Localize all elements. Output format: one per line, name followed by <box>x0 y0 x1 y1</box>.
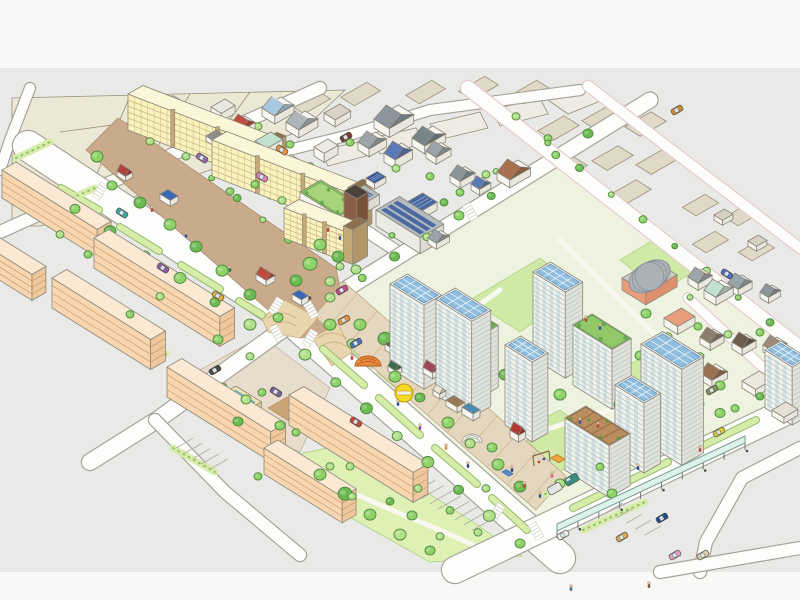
tree <box>756 393 764 400</box>
tree <box>422 457 434 468</box>
tree <box>390 252 400 261</box>
tree <box>545 140 551 146</box>
tree <box>190 241 202 252</box>
tree <box>364 509 376 520</box>
tree <box>233 417 243 426</box>
tree <box>348 493 356 500</box>
tree <box>299 349 311 360</box>
tree <box>446 507 454 514</box>
tree <box>641 309 651 318</box>
tree <box>414 485 422 492</box>
tree <box>91 151 103 162</box>
pedestrian <box>339 234 342 240</box>
tree <box>326 463 334 470</box>
tree <box>354 319 366 330</box>
pedestrian <box>599 324 602 330</box>
pedestrian <box>699 446 702 452</box>
highrise-tower-solar-roof <box>436 288 491 417</box>
pedestrian <box>327 226 330 232</box>
town-illustration-page <box>0 0 800 600</box>
pedestrian <box>597 422 600 428</box>
parked-bicycle <box>746 450 749 453</box>
pedestrian <box>419 424 422 430</box>
tree <box>216 265 228 276</box>
tree <box>407 511 417 520</box>
tree <box>324 319 336 330</box>
tree <box>440 199 448 206</box>
tree <box>386 498 394 505</box>
tree <box>756 329 764 336</box>
pedestrian <box>539 492 542 498</box>
tree <box>552 151 560 158</box>
yellow-sphere-kiosk <box>395 384 413 402</box>
tree <box>389 371 401 382</box>
tree <box>672 243 678 249</box>
tree <box>483 510 495 521</box>
tree <box>56 231 64 238</box>
tree <box>292 429 300 436</box>
tree <box>325 277 335 286</box>
tree <box>213 335 223 344</box>
parked-bicycle <box>704 469 707 472</box>
pedestrian <box>579 418 582 424</box>
tree <box>84 251 92 258</box>
tree <box>583 129 593 138</box>
tree <box>290 275 302 286</box>
pedestrian <box>309 294 312 300</box>
tree <box>107 181 117 190</box>
tree <box>260 217 266 223</box>
isometric-town-illustration <box>0 0 800 600</box>
tree <box>715 409 725 418</box>
tree <box>286 141 294 148</box>
tree <box>426 173 434 180</box>
tree <box>332 251 344 262</box>
tree <box>336 263 344 270</box>
tree <box>482 485 490 492</box>
pedestrian <box>637 464 640 470</box>
tree <box>275 421 285 430</box>
tree <box>156 293 164 300</box>
tree <box>241 395 251 404</box>
tree <box>360 403 372 414</box>
tree <box>392 165 400 172</box>
parked-bicycle <box>620 508 623 511</box>
tree <box>251 181 259 188</box>
tree <box>596 463 604 470</box>
tree <box>174 272 186 283</box>
tree <box>134 197 146 208</box>
tree <box>436 533 444 540</box>
tree <box>358 274 366 281</box>
parked-bicycle <box>662 489 665 492</box>
tree <box>482 171 490 178</box>
tree <box>278 197 286 204</box>
parked-bicycle <box>579 528 582 531</box>
tree <box>512 113 520 120</box>
tree <box>442 417 454 428</box>
tree <box>164 219 176 230</box>
tree <box>182 153 190 160</box>
pedestrian <box>511 466 514 472</box>
tree <box>233 194 241 201</box>
tree <box>331 378 341 387</box>
pedestrian <box>467 462 470 468</box>
pedestrian <box>397 400 400 406</box>
tree <box>639 216 647 223</box>
pedestrian <box>551 472 554 478</box>
tree <box>244 289 256 300</box>
tree <box>694 323 702 330</box>
tree <box>735 295 741 301</box>
tree <box>487 192 495 199</box>
pedestrian <box>648 582 651 588</box>
tree <box>394 529 406 540</box>
tree <box>487 443 497 452</box>
tree <box>474 529 482 536</box>
tree <box>314 469 326 480</box>
tree <box>766 319 774 326</box>
pedestrian <box>523 482 526 488</box>
tree <box>454 211 464 220</box>
tree <box>273 313 283 322</box>
pedestrian <box>351 354 354 360</box>
tree <box>724 331 732 338</box>
tree <box>314 239 326 250</box>
tree <box>425 546 435 555</box>
tree <box>303 257 317 270</box>
pedestrian <box>570 585 573 591</box>
tree <box>70 204 80 213</box>
tree <box>687 295 693 301</box>
tree <box>346 463 354 470</box>
pedestrian <box>585 316 588 322</box>
tree <box>554 389 566 400</box>
tree <box>492 459 504 470</box>
tree <box>254 473 262 480</box>
tree <box>389 233 395 239</box>
tree <box>146 138 154 145</box>
pedestrian <box>151 206 154 212</box>
tree <box>392 431 402 440</box>
tree <box>415 393 425 402</box>
tree <box>246 353 254 360</box>
tree <box>226 188 234 195</box>
tree <box>731 405 739 412</box>
tree <box>465 439 475 448</box>
tree <box>126 311 134 318</box>
tree <box>258 389 266 396</box>
tree <box>325 293 335 302</box>
tree <box>456 189 464 196</box>
pedestrian <box>445 444 448 450</box>
tree <box>454 485 464 494</box>
tree <box>576 164 584 171</box>
pedestrian <box>185 232 188 238</box>
tree <box>351 265 361 274</box>
tree <box>608 192 614 198</box>
tree <box>244 319 256 330</box>
tree <box>515 539 525 548</box>
pedestrian <box>229 266 232 272</box>
